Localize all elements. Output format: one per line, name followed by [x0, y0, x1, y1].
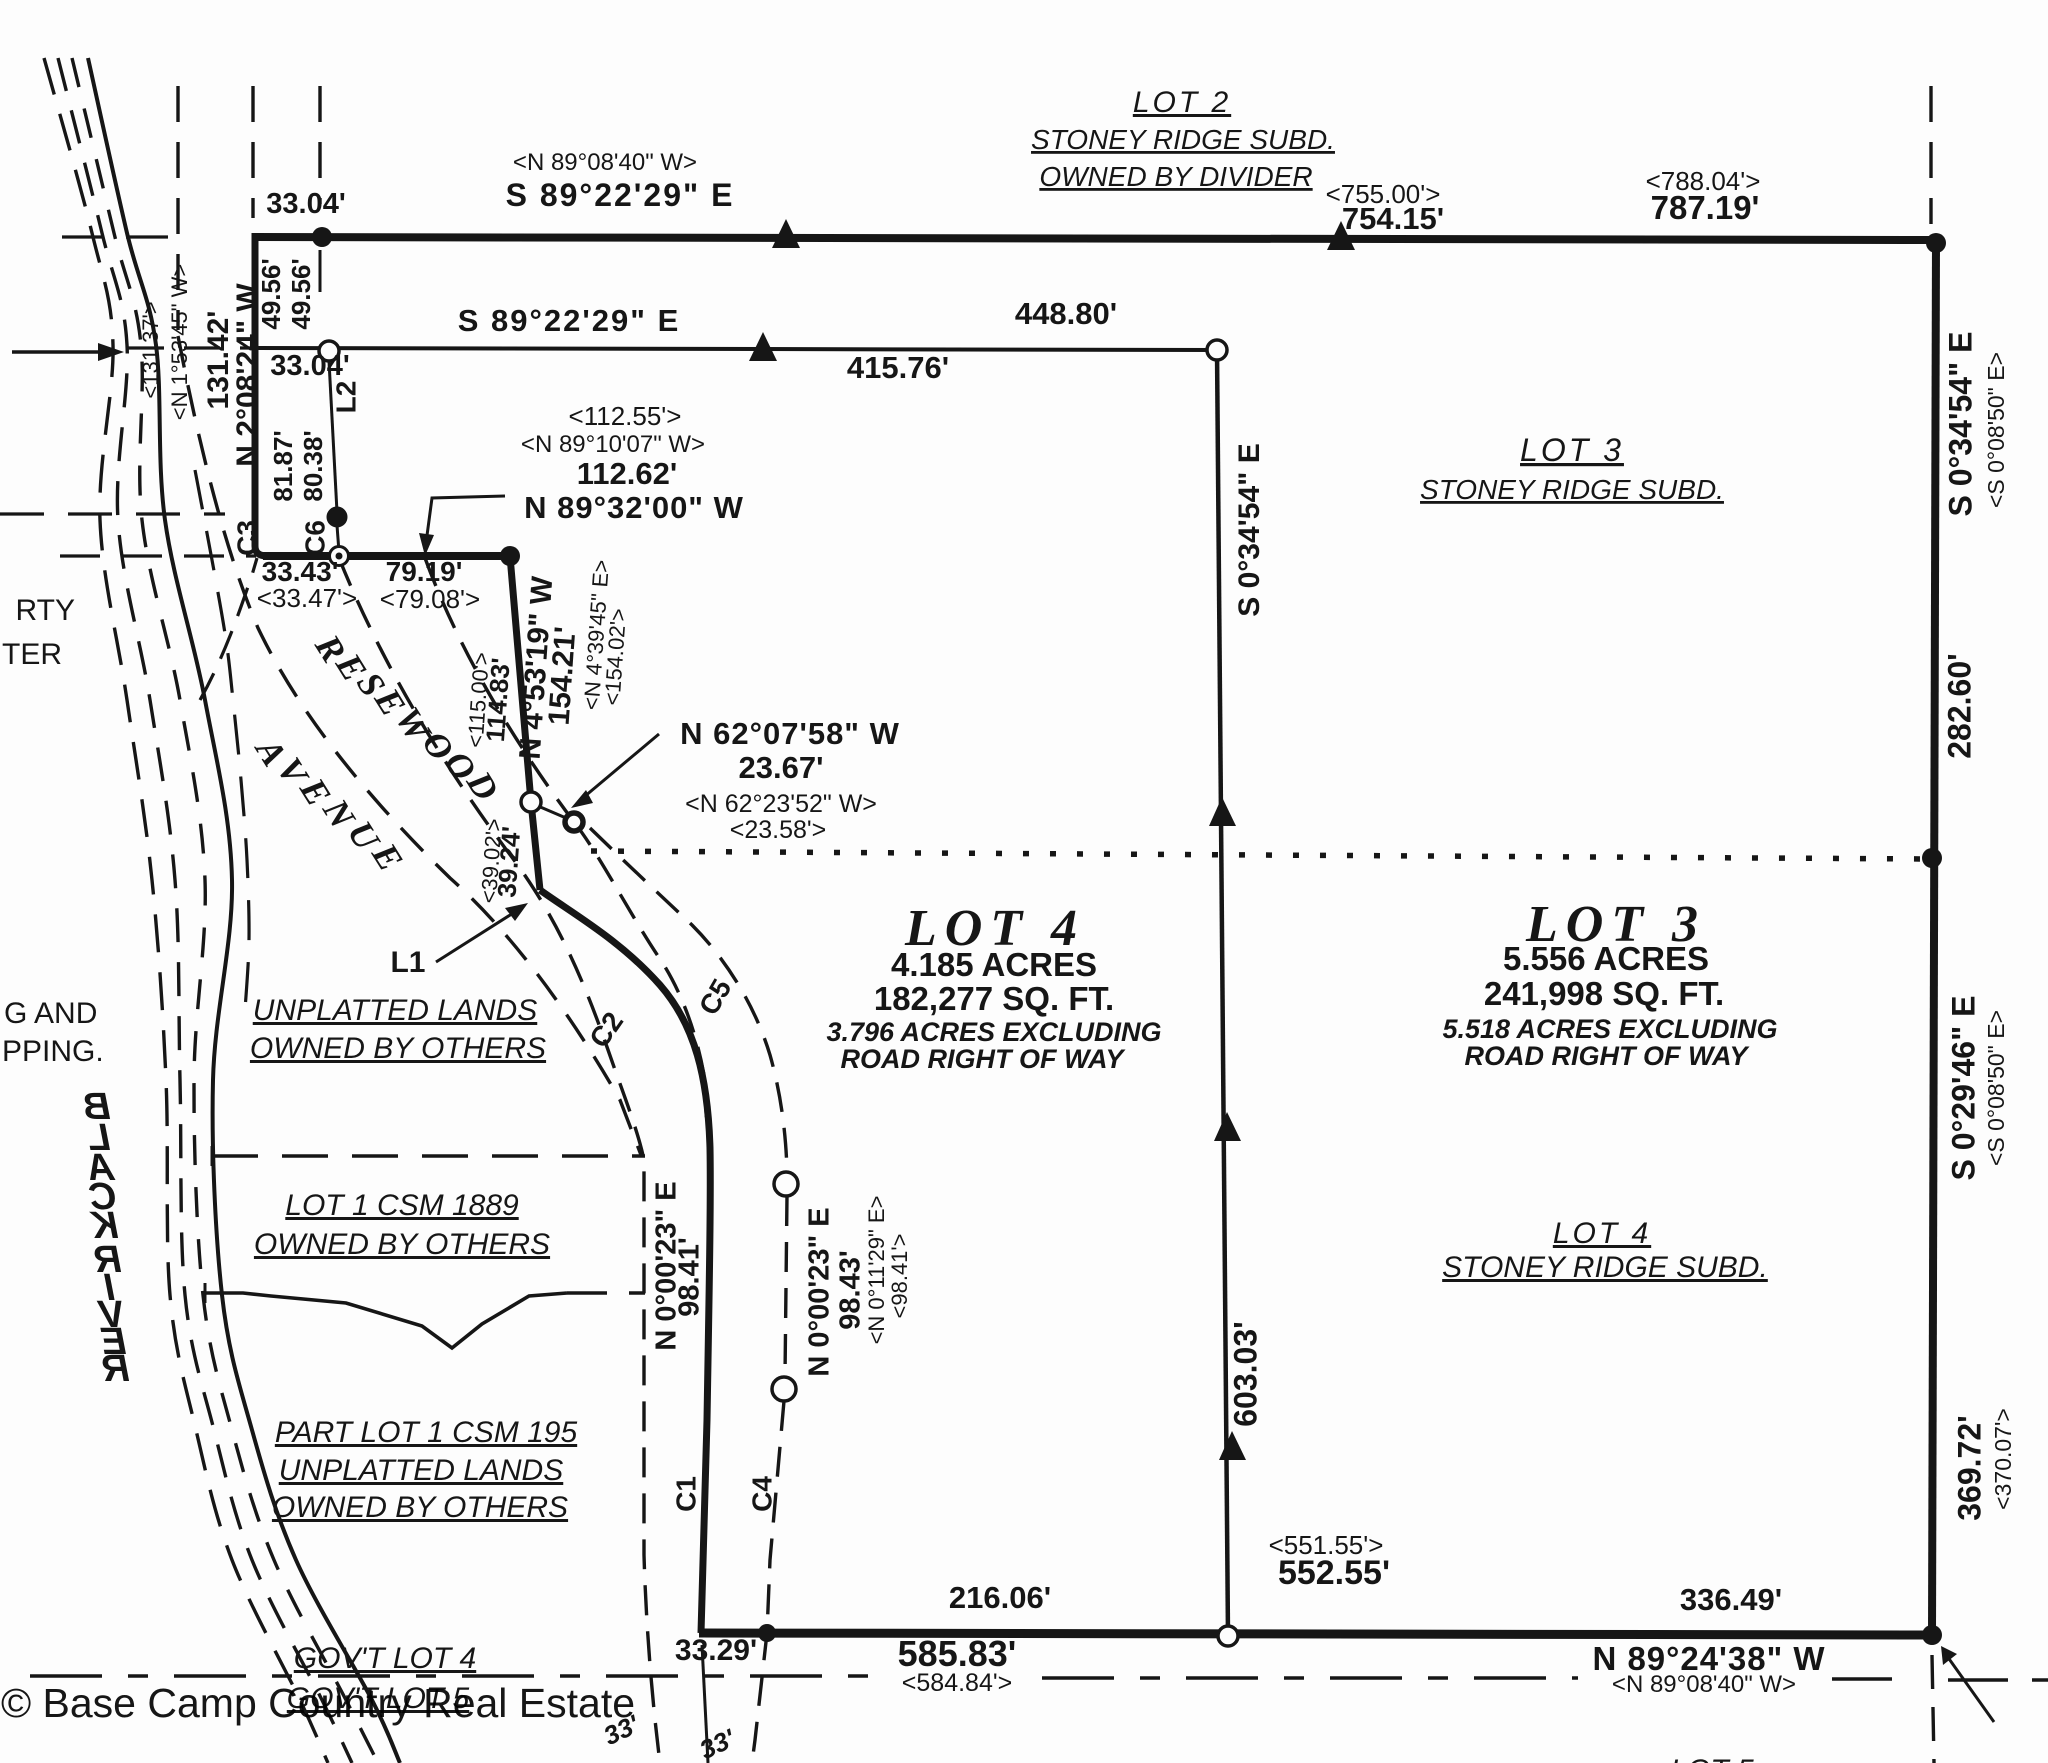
svg-text:<N 89°08'40" W>: <N 89°08'40" W>: [1612, 1671, 1796, 1698]
svg-text:<S 0°08'50" E>: <S 0°08'50" E>: [1983, 352, 2009, 508]
svg-text:4.185 ACRES: 4.185 ACRES: [891, 946, 1097, 983]
svg-text:<N 62°23'52" W>: <N 62°23'52" W>: [685, 790, 877, 818]
svg-text:<112.55'>: <112.55'>: [569, 401, 682, 431]
svg-text:5.518 ACRES EXCLUDING: 5.518 ACRES EXCLUDING: [1442, 1014, 1777, 1044]
svg-text:UNPLATTED LANDS: UNPLATTED LANDS: [253, 994, 538, 1027]
svg-text:C1: C1: [670, 1476, 701, 1512]
svg-text:5.556 ACRES: 5.556 ACRES: [1503, 940, 1709, 977]
svg-text:UNPLATTED LANDS: UNPLATTED LANDS: [279, 1454, 564, 1487]
svg-text:<79.08'>: <79.08'>: [380, 584, 480, 614]
svg-text:L1: L1: [390, 946, 425, 979]
svg-text:98.43': 98.43': [835, 1250, 867, 1329]
svg-text:<23.58'>: <23.58'>: [730, 816, 827, 844]
svg-text:49.56': 49.56': [256, 258, 286, 329]
svg-text:OWNED BY OTHERS: OWNED BY OTHERS: [254, 1228, 550, 1261]
svg-text:448.80': 448.80': [1015, 296, 1117, 331]
svg-text:369.72': 369.72': [1951, 1415, 1987, 1520]
svg-text:112.62': 112.62': [577, 456, 677, 491]
svg-text:C4: C4: [746, 1476, 777, 1512]
svg-text:585.83': 585.83': [898, 1633, 1017, 1674]
svg-text:81.87': 81.87': [268, 430, 298, 501]
svg-text:<584.84'>: <584.84'>: [902, 1669, 1012, 1697]
svg-text:N 0°00'23" E: N 0°00'23" E: [804, 1207, 836, 1376]
svg-text:LOT 5: LOT 5: [1670, 1754, 1754, 1763]
svg-text:STONEY RIDGE SUBD.: STONEY RIDGE SUBD.: [1031, 124, 1335, 155]
svg-text:ROAD RIGHT OF WAY: ROAD RIGHT OF WAY: [1465, 1041, 1751, 1071]
svg-text:<S 0°08'50" E>: <S 0°08'50" E>: [1983, 1010, 2009, 1166]
svg-text:282.60': 282.60': [1941, 653, 1977, 758]
svg-text:<98.41'>: <98.41'>: [887, 1234, 912, 1319]
svg-text:49.56': 49.56': [286, 258, 316, 329]
svg-text:114.83': 114.83': [480, 657, 516, 743]
svg-text:<N 89°10'07" W>: <N 89°10'07" W>: [521, 431, 705, 458]
svg-text:RTY: RTY: [16, 594, 75, 627]
svg-text:216.06': 216.06': [949, 1580, 1051, 1615]
svg-text:S 0°29'46" E: S 0°29'46" E: [1945, 995, 1981, 1180]
svg-text:33.04': 33.04': [270, 350, 349, 382]
svg-text:33.04': 33.04': [266, 188, 345, 220]
svg-text:S 0°34'54" E: S 0°34'54" E: [1942, 331, 1978, 516]
svg-text:N 89°32'00" W: N 89°32'00" W: [524, 490, 744, 525]
svg-text:182,277 SQ. FT.: 182,277 SQ. FT.: [874, 980, 1114, 1017]
svg-text:S 89°22'29" E: S 89°22'29" E: [506, 177, 735, 213]
svg-text:OWNED BY DIVIDER: OWNED BY DIVIDER: [1039, 161, 1312, 192]
svg-text:STONEY RIDGE SUBD.: STONEY RIDGE SUBD.: [1420, 474, 1724, 505]
svg-text:336.49': 336.49': [1680, 1582, 1782, 1617]
svg-text:TER: TER: [2, 638, 62, 671]
svg-text:241,998 SQ. FT.: 241,998 SQ. FT.: [1484, 975, 1724, 1012]
svg-text:STONEY RIDGE SUBD.: STONEY RIDGE SUBD.: [1442, 1251, 1768, 1284]
svg-text:<N 0°11'29" E>: <N 0°11'29" E>: [864, 1196, 889, 1345]
svg-text:OWNED BY OTHERS: OWNED BY OTHERS: [272, 1491, 568, 1524]
svg-text:154.21': 154.21': [543, 625, 583, 726]
svg-text:ROAD RIGHT OF WAY: ROAD RIGHT OF WAY: [841, 1044, 1127, 1074]
svg-text:N 62°07'58" W: N 62°07'58" W: [680, 716, 900, 751]
svg-text:754.15': 754.15': [1342, 201, 1444, 236]
svg-text:S 0°34'54" E: S 0°34'54" E: [1233, 443, 1266, 616]
svg-text:39.24': 39.24': [491, 825, 526, 898]
svg-text:80.38': 80.38': [298, 430, 328, 501]
svg-text:LOT 2: LOT 2: [1133, 86, 1231, 119]
svg-text:C6: C6: [299, 520, 330, 556]
svg-text:LOT 3: LOT 3: [1520, 432, 1624, 468]
svg-text:787.19': 787.19': [1651, 189, 1760, 226]
svg-text:C3: C3: [231, 520, 262, 556]
svg-text:G AND: G AND: [4, 997, 97, 1030]
svg-text:OWNED BY OTHERS: OWNED BY OTHERS: [250, 1032, 546, 1065]
svg-text:23.67': 23.67': [739, 750, 824, 785]
svg-text:S 89°22'29" E: S 89°22'29" E: [458, 303, 681, 338]
svg-text:LOT 4: LOT 4: [1553, 1217, 1651, 1250]
svg-text:PPING.: PPING.: [2, 1035, 104, 1068]
svg-text:415.76': 415.76': [847, 350, 949, 385]
svg-text:PART LOT 1 CSM 195: PART LOT 1 CSM 195: [275, 1416, 578, 1449]
svg-text:<131.37'>: <131.37'>: [138, 301, 163, 398]
svg-text:3.796 ACRES EXCLUDING: 3.796 ACRES EXCLUDING: [826, 1017, 1161, 1047]
svg-text:<N 1°53'45" W>: <N 1°53'45" W>: [167, 264, 192, 421]
svg-text:33.29': 33.29': [675, 1634, 757, 1667]
svg-text:R: R: [102, 1348, 130, 1390]
svg-text:<N 89°08'40" W>: <N 89°08'40" W>: [513, 149, 697, 176]
svg-text:<370.07'>: <370.07'>: [1990, 1408, 2016, 1510]
svg-text:603.03': 603.03': [1227, 1321, 1263, 1426]
svg-text:<551.55'>: <551.55'>: [1269, 1530, 1384, 1560]
svg-text:GOV'T LOT 4: GOV'T LOT 4: [294, 1642, 476, 1675]
svg-text:<33.47'>: <33.47'>: [257, 583, 357, 613]
svg-text:L2: L2: [330, 381, 361, 414]
svg-text:© Base Camp Country Real Estat: © Base Camp Country Real Estate: [1, 1680, 635, 1726]
svg-text:98.41': 98.41': [674, 1237, 706, 1316]
svg-text:LOT 1 CSM 1889: LOT 1 CSM 1889: [285, 1189, 519, 1222]
svg-text:79.19': 79.19': [386, 556, 463, 587]
